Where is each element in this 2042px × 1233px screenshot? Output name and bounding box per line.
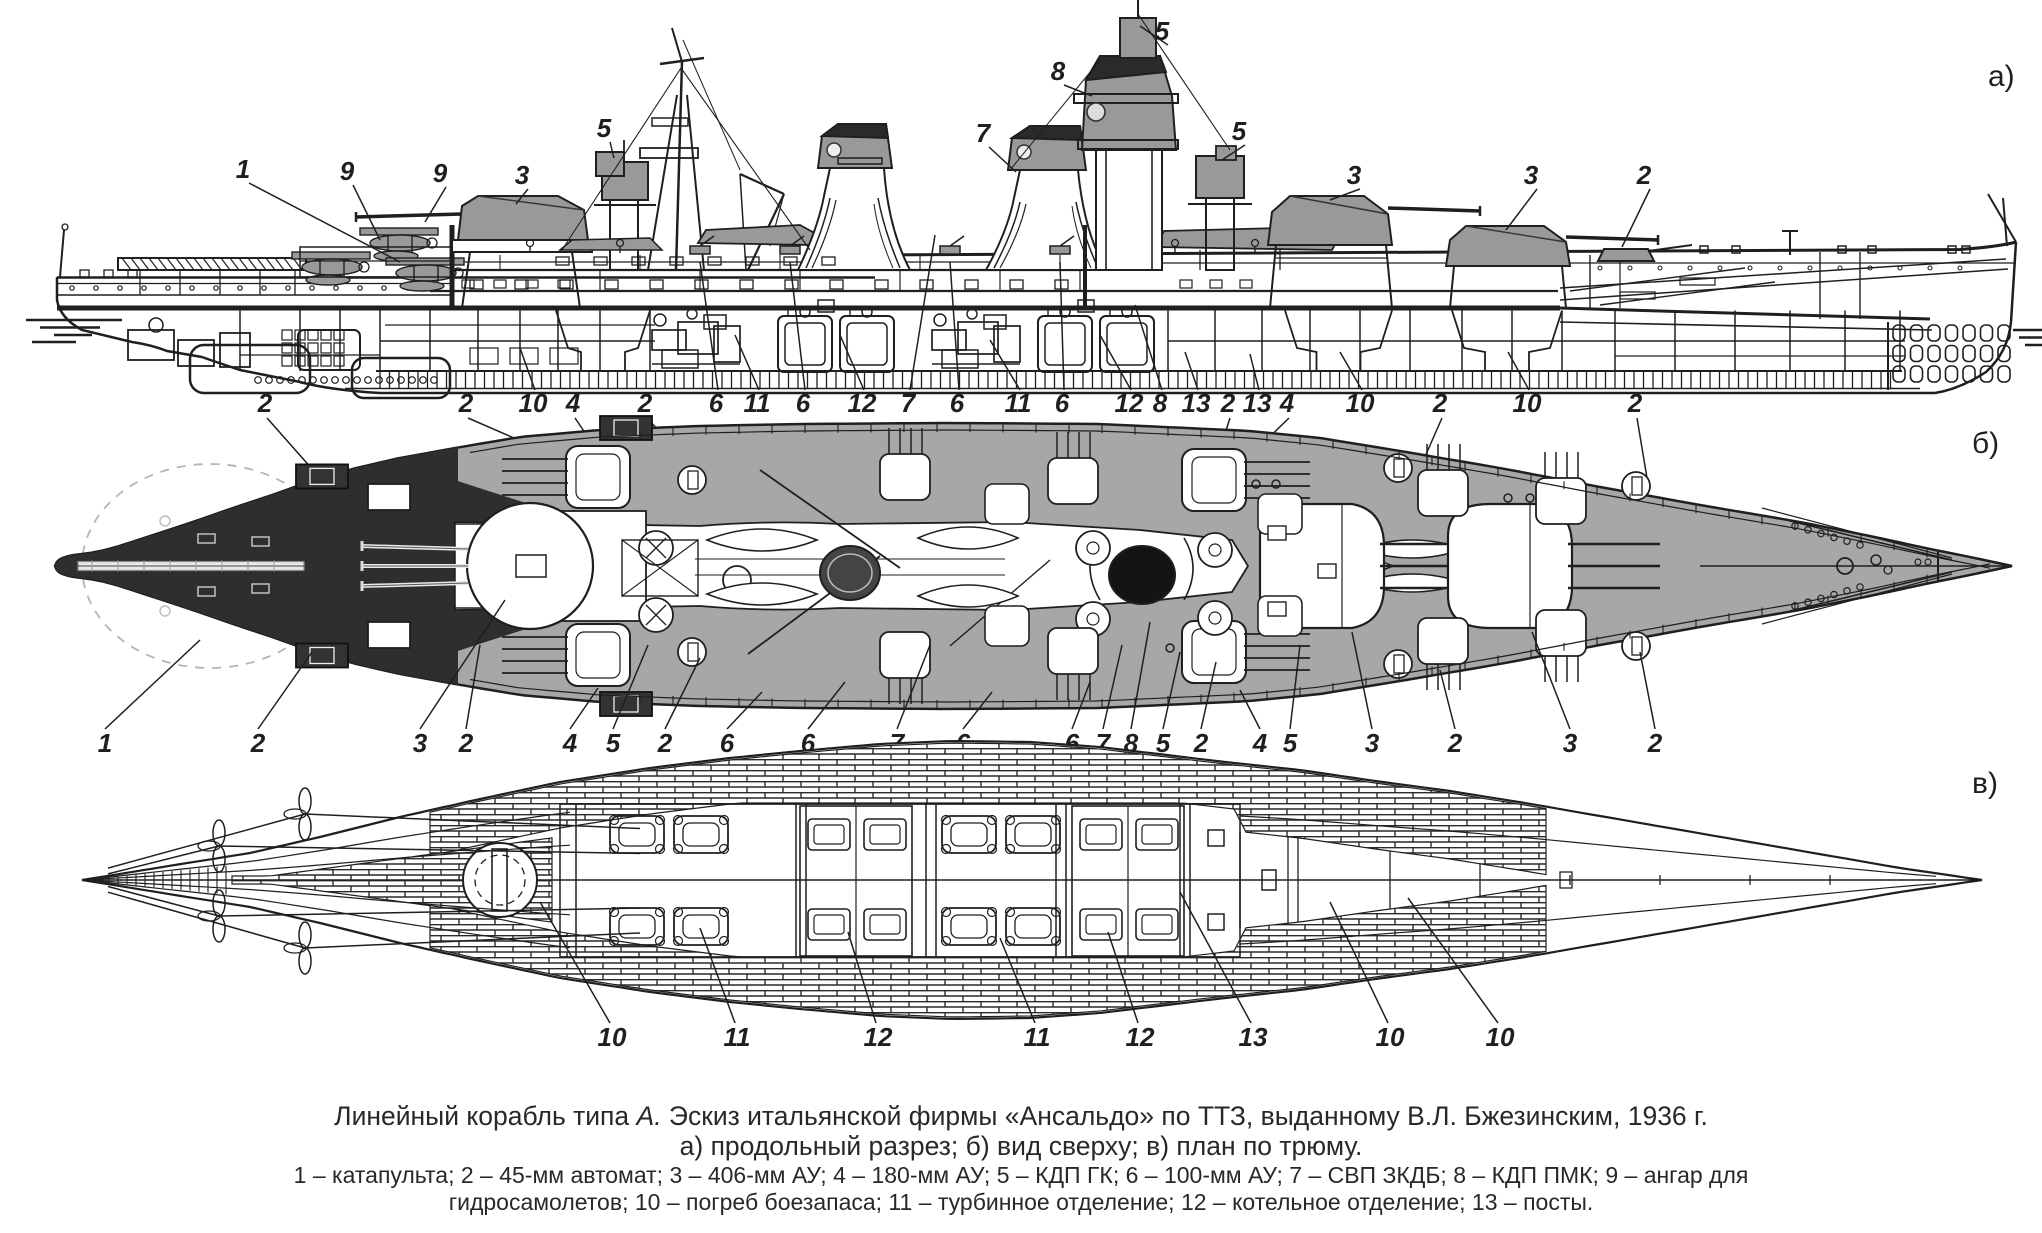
- svg-text:а) продольный разрез; б) вид с: а) продольный разрез; б) вид сверху; в) …: [680, 1131, 1363, 1161]
- svg-text:12: 12: [848, 388, 877, 418]
- svg-text:1: 1: [98, 728, 112, 758]
- svg-text:гидросамолетов; 10 – погреб бо: гидросамолетов; 10 – погреб боезапаса; 1…: [449, 1189, 1594, 1215]
- svg-text:7: 7: [901, 388, 917, 418]
- svg-text:4: 4: [565, 388, 581, 418]
- svg-text:6: 6: [1055, 388, 1070, 418]
- svg-text:10: 10: [1513, 388, 1542, 418]
- svg-text:Линейный корабль типа А. Эскиз: Линейный корабль типа А. Эскиз итальянск…: [334, 1101, 1708, 1131]
- svg-text:13: 13: [1243, 388, 1272, 418]
- svg-text:5: 5: [606, 728, 621, 758]
- svg-text:1 – катапульта; 2 – 45-мм авто: 1 – катапульта; 2 – 45-мм автомат; 3 – 4…: [294, 1162, 1749, 1188]
- svg-text:2: 2: [1447, 728, 1463, 758]
- svg-text:10: 10: [1346, 388, 1375, 418]
- svg-text:11: 11: [1005, 388, 1032, 418]
- svg-text:5: 5: [1283, 728, 1298, 758]
- svg-text:3: 3: [413, 728, 428, 758]
- svg-text:6: 6: [709, 388, 724, 418]
- svg-text:5: 5: [597, 113, 612, 143]
- svg-text:11: 11: [1024, 1022, 1051, 1052]
- svg-text:6: 6: [950, 388, 965, 418]
- svg-text:9: 9: [433, 158, 448, 188]
- svg-text:2: 2: [1627, 388, 1643, 418]
- svg-text:2: 2: [250, 728, 266, 758]
- svg-text:в): в): [1972, 767, 1998, 800]
- svg-text:2: 2: [637, 388, 653, 418]
- svg-text:13: 13: [1182, 388, 1211, 418]
- svg-text:11: 11: [744, 388, 771, 418]
- svg-text:3: 3: [1524, 160, 1539, 190]
- svg-text:3: 3: [1347, 160, 1362, 190]
- svg-text:11: 11: [724, 1022, 751, 1052]
- svg-text:2: 2: [1193, 728, 1209, 758]
- svg-text:4: 4: [1279, 388, 1295, 418]
- svg-text:12: 12: [864, 1022, 893, 1052]
- svg-text:2: 2: [1647, 728, 1663, 758]
- svg-text:а): а): [1988, 60, 2015, 93]
- svg-text:2: 2: [458, 388, 474, 418]
- svg-text:5: 5: [1232, 116, 1247, 146]
- svg-text:10: 10: [1376, 1022, 1405, 1052]
- svg-text:3: 3: [1563, 728, 1578, 758]
- svg-text:2: 2: [1432, 388, 1448, 418]
- svg-text:2: 2: [657, 728, 673, 758]
- svg-text:13: 13: [1239, 1022, 1268, 1052]
- svg-text:2: 2: [458, 728, 474, 758]
- svg-text:6: 6: [796, 388, 811, 418]
- svg-text:2: 2: [1636, 160, 1652, 190]
- svg-text:8: 8: [1153, 388, 1168, 418]
- svg-text:12: 12: [1126, 1022, 1155, 1052]
- svg-text:б): б): [1972, 427, 1999, 460]
- svg-text:6: 6: [720, 728, 735, 758]
- svg-text:2: 2: [257, 388, 273, 418]
- svg-text:1: 1: [236, 154, 250, 184]
- svg-text:3: 3: [515, 160, 530, 190]
- svg-text:10: 10: [1486, 1022, 1515, 1052]
- svg-text:4: 4: [562, 728, 578, 758]
- svg-text:9: 9: [340, 156, 355, 186]
- svg-text:12: 12: [1115, 388, 1144, 418]
- svg-text:7: 7: [976, 118, 992, 148]
- svg-text:8: 8: [1051, 56, 1066, 86]
- svg-text:10: 10: [519, 388, 548, 418]
- svg-text:4: 4: [1252, 728, 1268, 758]
- svg-text:10: 10: [598, 1022, 627, 1052]
- svg-text:3: 3: [1365, 728, 1380, 758]
- svg-text:2: 2: [1220, 388, 1236, 418]
